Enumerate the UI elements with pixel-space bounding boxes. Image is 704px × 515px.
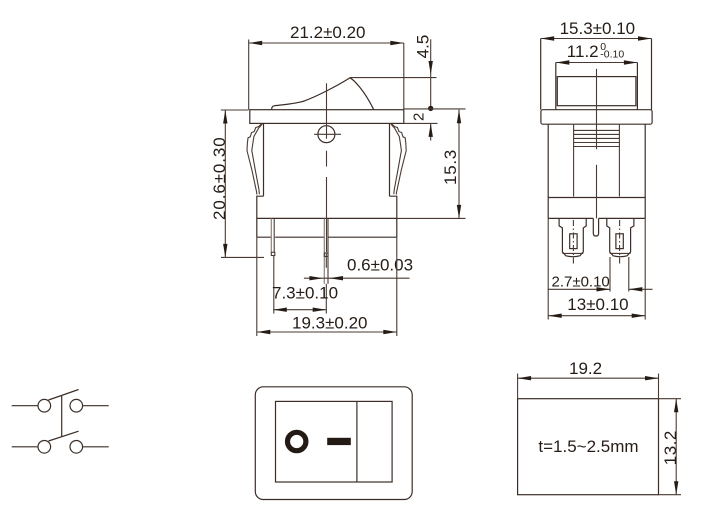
svg-text:19.3±0.20: 19.3±0.20 <box>292 313 368 332</box>
svg-text:t=1.5~2.5mm: t=1.5~2.5mm <box>538 437 638 456</box>
svg-text:-0.10: -0.10 <box>600 49 624 61</box>
svg-text:13.2: 13.2 <box>661 430 680 465</box>
svg-text:19.2: 19.2 <box>569 359 602 378</box>
svg-text:13±0.10: 13±0.10 <box>567 295 628 314</box>
svg-text:2: 2 <box>411 113 428 121</box>
svg-text:15.3±0.10: 15.3±0.10 <box>560 19 636 38</box>
svg-text:11.2: 11.2 <box>567 42 599 61</box>
svg-text:0.6±0.03: 0.6±0.03 <box>347 256 413 275</box>
svg-text:7.3±0.10: 7.3±0.10 <box>272 284 338 303</box>
svg-text:21.2±0.20: 21.2±0.20 <box>290 23 366 42</box>
svg-text:2.7±0.10: 2.7±0.10 <box>552 273 610 290</box>
svg-text:15.3: 15.3 <box>441 149 460 185</box>
svg-text:20.6±0.30: 20.6±0.30 <box>210 136 229 220</box>
svg-text:4.5: 4.5 <box>414 35 433 59</box>
